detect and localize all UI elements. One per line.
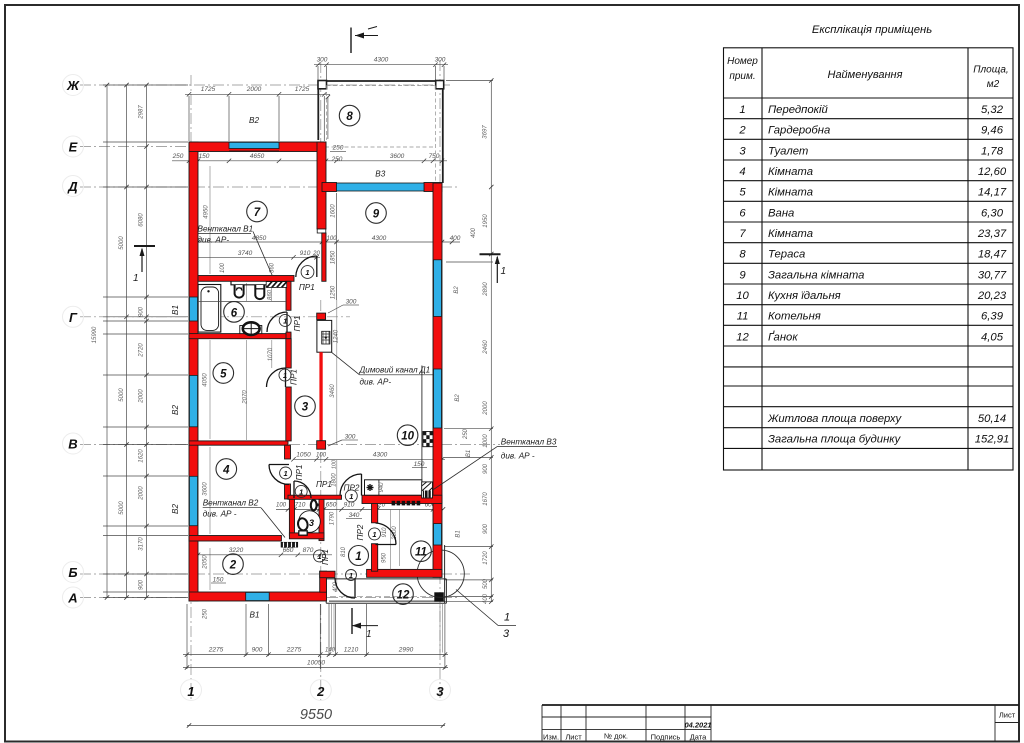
- svg-text:150: 150: [199, 153, 210, 160]
- svg-text:910: 910: [300, 250, 311, 257]
- svg-text:2000: 2000: [483, 401, 489, 416]
- svg-text:В1: В1: [171, 305, 180, 315]
- svg-text:Кімната: Кімната: [768, 228, 813, 240]
- svg-text:1: 1: [133, 273, 139, 284]
- svg-text:див. АР -: див. АР -: [501, 452, 535, 461]
- svg-text:2990: 2990: [398, 647, 414, 654]
- svg-text:Номер: Номер: [727, 56, 758, 67]
- svg-text:1850: 1850: [331, 250, 337, 264]
- svg-text:В2: В2: [171, 504, 180, 514]
- svg-text:м2: м2: [987, 79, 1000, 90]
- svg-text:100: 100: [276, 503, 287, 509]
- svg-text:Житлова площа поверху: Житлова площа поверху: [767, 413, 903, 425]
- svg-text:650: 650: [326, 502, 337, 509]
- svg-text:Кімната: Кімната: [768, 166, 813, 178]
- svg-text:500: 500: [483, 578, 489, 589]
- svg-text:20,23: 20,23: [977, 290, 1007, 302]
- svg-text:Загальна площа будинку: Загальна площа будинку: [768, 434, 902, 446]
- svg-text:250: 250: [203, 608, 209, 620]
- svg-text:10: 10: [401, 431, 414, 443]
- svg-text:Вентканал В3: Вентканал В3: [501, 437, 557, 446]
- svg-text:1210: 1210: [344, 647, 359, 654]
- svg-text:В1: В1: [466, 450, 472, 457]
- svg-text:250: 250: [463, 428, 469, 440]
- svg-text:12,60: 12,60: [978, 166, 1007, 178]
- svg-text:1070: 1070: [268, 347, 274, 361]
- svg-text:ПР1: ПР1: [316, 480, 332, 489]
- svg-text:400: 400: [483, 593, 489, 604]
- svg-text:710: 710: [295, 502, 306, 509]
- svg-text:Гардеробна: Гардеробна: [768, 125, 830, 137]
- svg-text:ПР1: ПР1: [321, 549, 330, 565]
- svg-text:12: 12: [397, 590, 410, 602]
- svg-text:23,37: 23,37: [977, 228, 1007, 240]
- svg-text:5000: 5000: [119, 236, 125, 250]
- svg-text:2: 2: [316, 684, 325, 699]
- svg-text:4: 4: [739, 166, 745, 178]
- svg-text:ПР1: ПР1: [290, 369, 299, 385]
- svg-text:див. АР-: див. АР-: [360, 378, 392, 387]
- svg-text:В: В: [68, 437, 77, 452]
- svg-text:1725: 1725: [295, 86, 310, 93]
- svg-text:9550: 9550: [300, 707, 332, 723]
- svg-text:2460: 2460: [483, 340, 489, 355]
- svg-text:1670: 1670: [483, 492, 489, 506]
- svg-text:660: 660: [283, 547, 294, 554]
- svg-text:4,05: 4,05: [981, 331, 1004, 343]
- svg-text:940: 940: [379, 482, 385, 493]
- svg-text:1950: 1950: [483, 214, 489, 228]
- svg-text:1: 1: [283, 371, 287, 380]
- svg-text:1: 1: [366, 629, 372, 640]
- svg-text:1: 1: [349, 571, 353, 580]
- svg-text:див. АР -: див. АР -: [203, 510, 237, 519]
- svg-text:8: 8: [739, 249, 746, 261]
- svg-text:300: 300: [346, 299, 357, 306]
- svg-text:3170: 3170: [139, 537, 145, 551]
- svg-text:Вана: Вана: [768, 207, 794, 219]
- svg-text:3600: 3600: [390, 153, 405, 160]
- svg-text:300: 300: [317, 57, 328, 64]
- svg-text:ПР2: ПР2: [356, 524, 365, 540]
- svg-text:50,14: 50,14: [978, 413, 1006, 425]
- svg-text:В1: В1: [456, 530, 462, 537]
- svg-text:3: 3: [503, 628, 510, 640]
- svg-text:В2: В2: [455, 394, 461, 402]
- svg-text:150: 150: [213, 577, 224, 584]
- svg-text:900: 900: [139, 579, 145, 590]
- svg-text:Подпись: Подпись: [651, 733, 681, 742]
- svg-text:Б: Б: [68, 565, 77, 580]
- svg-text:Вентканал В1: Вентканал В1: [198, 225, 254, 234]
- svg-text:Ж: Ж: [66, 78, 80, 93]
- svg-text:30,77: 30,77: [978, 269, 1007, 281]
- svg-text:ПР2: ПР2: [344, 484, 360, 493]
- svg-text:Кухня їдальня: Кухня їдальня: [768, 290, 841, 302]
- svg-text:1: 1: [299, 487, 303, 496]
- svg-text:Димовий канал Д1: Димовий канал Д1: [359, 366, 431, 375]
- svg-text:3220: 3220: [229, 547, 244, 554]
- svg-text:910: 910: [382, 527, 388, 538]
- svg-text:4: 4: [222, 465, 230, 477]
- svg-text:1720: 1720: [483, 551, 489, 565]
- svg-text:В3: В3: [375, 170, 385, 179]
- svg-text:1050: 1050: [296, 452, 311, 459]
- svg-text:6,30: 6,30: [981, 207, 1004, 219]
- svg-text:3600: 3600: [203, 482, 209, 496]
- svg-text:1250: 1250: [331, 285, 337, 299]
- svg-text:див. АР-: див. АР-: [198, 236, 230, 245]
- svg-text:1725: 1725: [201, 86, 216, 93]
- svg-text:7: 7: [739, 228, 746, 240]
- svg-text:2275: 2275: [286, 647, 302, 654]
- svg-text:250: 250: [331, 156, 343, 163]
- svg-text:Загальна кімната: Загальна кімната: [768, 269, 864, 281]
- svg-text:300: 300: [435, 57, 446, 64]
- svg-text:4050: 4050: [203, 373, 209, 387]
- svg-text:2070: 2070: [243, 390, 249, 405]
- svg-text:9: 9: [373, 209, 380, 221]
- svg-text:Дата: Дата: [690, 733, 707, 742]
- svg-text:9: 9: [739, 269, 746, 281]
- svg-text:1: 1: [305, 268, 309, 277]
- svg-text:2275: 2275: [208, 647, 224, 654]
- svg-text:ПР1: ПР1: [299, 283, 315, 292]
- svg-text:1240: 1240: [334, 329, 340, 343]
- svg-text:18,47: 18,47: [978, 249, 1007, 261]
- svg-text:100: 100: [316, 453, 327, 459]
- svg-text:5000: 5000: [119, 388, 125, 402]
- svg-text:3460: 3460: [330, 384, 336, 398]
- svg-text:1: 1: [372, 530, 376, 539]
- svg-text:4300: 4300: [373, 452, 388, 459]
- svg-text:8: 8: [346, 111, 353, 123]
- svg-text:900: 900: [483, 463, 489, 474]
- svg-text:3: 3: [739, 145, 746, 157]
- svg-text:Лист: Лист: [565, 733, 582, 742]
- svg-text:900: 900: [139, 306, 145, 317]
- svg-text:В2: В2: [171, 405, 180, 415]
- svg-text:Площа,: Площа,: [973, 65, 1008, 76]
- svg-text:ПР1: ПР1: [293, 316, 302, 332]
- svg-text:ПР1: ПР1: [295, 465, 304, 481]
- svg-text:Лист: Лист: [999, 711, 1016, 720]
- svg-text:340: 340: [349, 512, 360, 519]
- svg-text:2987: 2987: [139, 105, 145, 120]
- svg-text:Передпокій: Передпокій: [768, 104, 828, 116]
- svg-text:1600: 1600: [331, 204, 337, 218]
- svg-text:870: 870: [303, 547, 314, 554]
- svg-text:10: 10: [736, 290, 749, 302]
- svg-text:1: 1: [739, 104, 745, 116]
- svg-text:1: 1: [501, 266, 507, 277]
- svg-text:Е: Е: [69, 140, 78, 155]
- svg-text:2720: 2720: [139, 343, 145, 358]
- svg-text:Найменування: Найменування: [828, 69, 903, 81]
- svg-text:12: 12: [736, 331, 749, 343]
- svg-text:А: А: [67, 591, 77, 606]
- svg-text:Г: Г: [69, 310, 78, 325]
- svg-text:Кімната: Кімната: [768, 187, 813, 199]
- svg-text:860: 860: [268, 289, 274, 300]
- svg-text:15990: 15990: [92, 326, 98, 343]
- svg-text:300: 300: [345, 434, 356, 441]
- svg-text:4300: 4300: [374, 57, 389, 64]
- svg-text:9,46: 9,46: [981, 125, 1004, 137]
- svg-text:6: 6: [739, 207, 746, 219]
- svg-text:6080: 6080: [139, 213, 145, 227]
- svg-text:2000: 2000: [139, 486, 145, 501]
- svg-text:В2: В2: [249, 116, 259, 125]
- svg-text:900: 900: [483, 523, 489, 534]
- svg-text:4950: 4950: [204, 205, 210, 219]
- svg-text:2: 2: [738, 125, 746, 137]
- svg-text:11: 11: [415, 547, 427, 559]
- svg-text:100: 100: [332, 459, 338, 469]
- svg-text:250: 250: [172, 153, 184, 160]
- svg-text:910: 910: [344, 502, 355, 509]
- svg-text:1620: 1620: [139, 449, 145, 463]
- svg-text:900: 900: [252, 647, 263, 654]
- svg-text:5: 5: [739, 187, 746, 199]
- svg-text:прим.: прим.: [729, 71, 755, 82]
- svg-text:2050: 2050: [203, 555, 209, 570]
- svg-text:6,39: 6,39: [981, 311, 1004, 323]
- svg-text:Вентканал В2: Вентканал В2: [203, 499, 259, 508]
- svg-text:250: 250: [332, 145, 344, 152]
- svg-text:1: 1: [349, 492, 353, 501]
- svg-text:1790: 1790: [330, 511, 336, 525]
- svg-text:150: 150: [414, 461, 425, 468]
- svg-text:Д: Д: [67, 179, 78, 194]
- svg-text:2890: 2890: [483, 282, 489, 297]
- svg-text:1,78: 1,78: [981, 145, 1004, 157]
- svg-text:3: 3: [309, 518, 314, 528]
- svg-text:Ґанок: Ґанок: [768, 330, 798, 343]
- svg-text:Тераса: Тераса: [768, 249, 805, 261]
- svg-text:1: 1: [284, 469, 288, 478]
- svg-text:5: 5: [220, 369, 227, 381]
- svg-text:5,32: 5,32: [981, 104, 1004, 116]
- svg-text:3697: 3697: [483, 125, 489, 139]
- svg-text:14,17: 14,17: [978, 187, 1007, 199]
- svg-text:Изм.: Изм.: [543, 733, 559, 742]
- svg-text:10050: 10050: [307, 660, 325, 667]
- svg-text:В1: В1: [249, 611, 259, 620]
- svg-text:№ док.: № док.: [604, 732, 628, 741]
- svg-text:11: 11: [737, 311, 749, 323]
- svg-text:В2: В2: [454, 286, 460, 294]
- svg-text:4650: 4650: [250, 153, 265, 160]
- svg-text:810: 810: [341, 546, 347, 557]
- svg-text:3740: 3740: [238, 250, 253, 257]
- svg-text:04.2021: 04.2021: [684, 721, 711, 730]
- svg-text:2: 2: [229, 560, 237, 572]
- svg-text:1000: 1000: [483, 434, 489, 448]
- svg-text:4850: 4850: [252, 235, 267, 242]
- svg-text:1: 1: [504, 612, 510, 624]
- svg-text:2000: 2000: [139, 389, 145, 404]
- svg-text:7: 7: [254, 207, 261, 219]
- svg-text:1: 1: [187, 684, 194, 699]
- svg-text:100: 100: [326, 236, 337, 242]
- svg-text:Експлікація приміщень: Експлікація приміщень: [812, 24, 932, 36]
- svg-text:2000: 2000: [246, 86, 262, 93]
- svg-text:1800: 1800: [332, 473, 338, 487]
- svg-text:100: 100: [220, 262, 226, 273]
- svg-text:3: 3: [302, 402, 309, 414]
- svg-text:950: 950: [382, 552, 388, 563]
- svg-text:400: 400: [450, 235, 461, 242]
- svg-text:1: 1: [355, 551, 361, 563]
- svg-text:Котельня: Котельня: [768, 311, 821, 323]
- svg-text:1: 1: [283, 316, 287, 325]
- svg-text:6: 6: [231, 307, 238, 319]
- svg-text:4300: 4300: [372, 235, 387, 242]
- svg-text:3: 3: [436, 684, 444, 699]
- svg-text:5000: 5000: [119, 501, 125, 515]
- svg-text:152,91: 152,91: [975, 434, 1010, 446]
- svg-text:Туалет: Туалет: [768, 145, 808, 157]
- svg-text:400: 400: [471, 227, 477, 238]
- svg-text:750: 750: [429, 153, 440, 160]
